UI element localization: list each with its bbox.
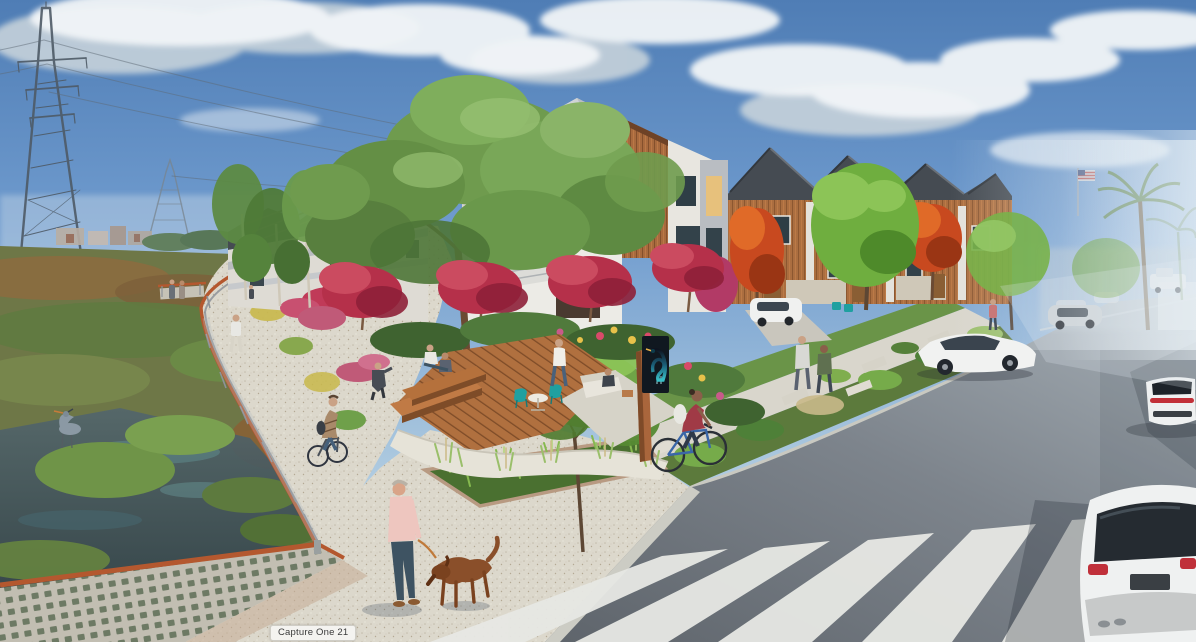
suv-rear (1080, 485, 1196, 642)
rendering-canvas: Capture One 21 (0, 0, 1196, 642)
rendering-scene (0, 0, 1196, 642)
capture-one-watermark: Capture One 21 (270, 625, 356, 641)
